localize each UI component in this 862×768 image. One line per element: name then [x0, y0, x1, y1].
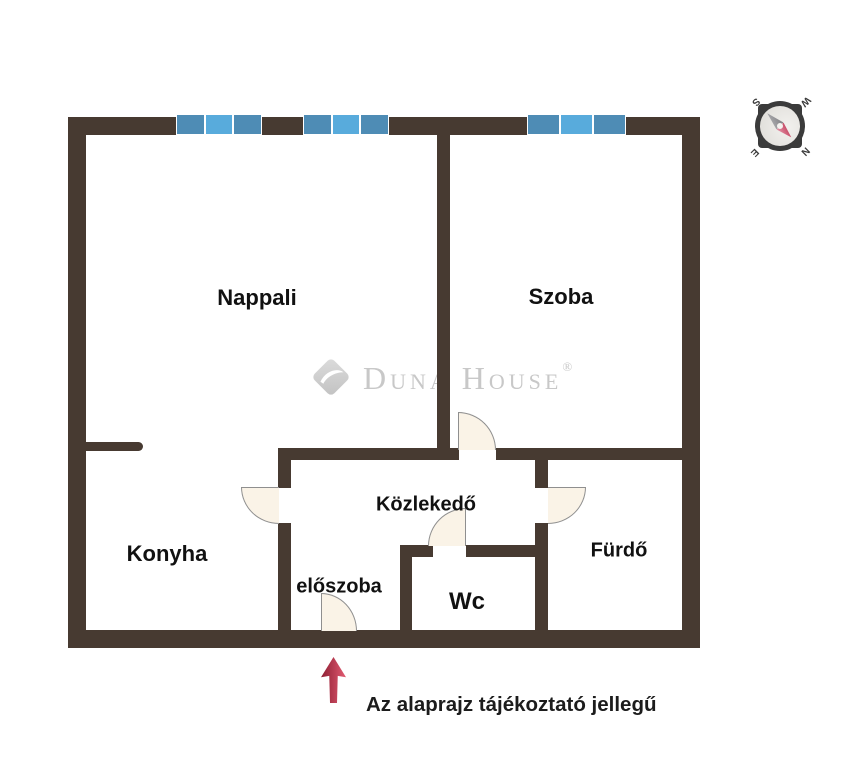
floorplan-canvas: Duna House® Nappali Szoba Konyha Közleke…	[0, 0, 862, 768]
wall-konyha-eloszoba-bottom	[278, 523, 291, 630]
window-pane	[528, 115, 559, 134]
window-pane	[594, 115, 625, 134]
wall-bottom	[68, 630, 700, 648]
window-2	[303, 114, 389, 135]
window-pane	[333, 115, 360, 134]
room-label-konyha: Konyha	[127, 541, 208, 567]
wall-left	[68, 117, 86, 648]
wall-nappali-szoba-divider	[437, 133, 450, 460]
compass-label-north: N	[799, 145, 811, 157]
disclaimer-text: Az alaprajz tájékoztató jellegű	[366, 693, 657, 717]
window-pane	[234, 115, 261, 134]
wall-right	[682, 117, 700, 648]
wall-hall-top-right	[496, 448, 682, 460]
wall-furdo-bottom	[535, 523, 548, 630]
room-label-wc: Wc	[449, 588, 485, 616]
room-label-nappali: Nappali	[217, 285, 296, 311]
wall-hall-top-left	[278, 448, 459, 460]
window-pane	[304, 115, 331, 134]
window-pane	[361, 115, 388, 134]
door-entrance	[321, 593, 357, 631]
window-pane	[561, 115, 592, 134]
room-label-szoba: Szoba	[529, 284, 594, 310]
wall-wc-left	[400, 545, 412, 630]
compass-label-east: E	[748, 146, 760, 158]
wall-furdo-top	[535, 448, 548, 488]
wall-wc-top-right	[466, 545, 548, 557]
window-pane	[206, 115, 233, 134]
wall-konyha-eloszoba-top	[278, 448, 291, 488]
room-label-furdo: Fürdő	[591, 540, 648, 563]
entrance-arrow-icon	[321, 657, 346, 703]
watermark-text: Duna House®	[363, 360, 572, 394]
window-pane	[177, 115, 204, 134]
door-konyha	[241, 487, 279, 524]
duna-house-logo-icon	[308, 354, 354, 400]
wall-wc-top-left	[400, 545, 433, 557]
compass-icon: N E S W	[723, 69, 836, 182]
room-label-eloszoba: előszoba	[296, 576, 382, 599]
room-label-kozlekedo: Közlekedő	[376, 494, 476, 517]
window-1	[176, 114, 262, 135]
compass-label-south: S	[749, 95, 761, 107]
door-furdo	[548, 487, 586, 524]
registered-mark: ®	[562, 359, 572, 374]
door-szoba	[458, 412, 496, 450]
wall-kitchen-stub	[86, 442, 143, 451]
window-3	[527, 114, 626, 135]
